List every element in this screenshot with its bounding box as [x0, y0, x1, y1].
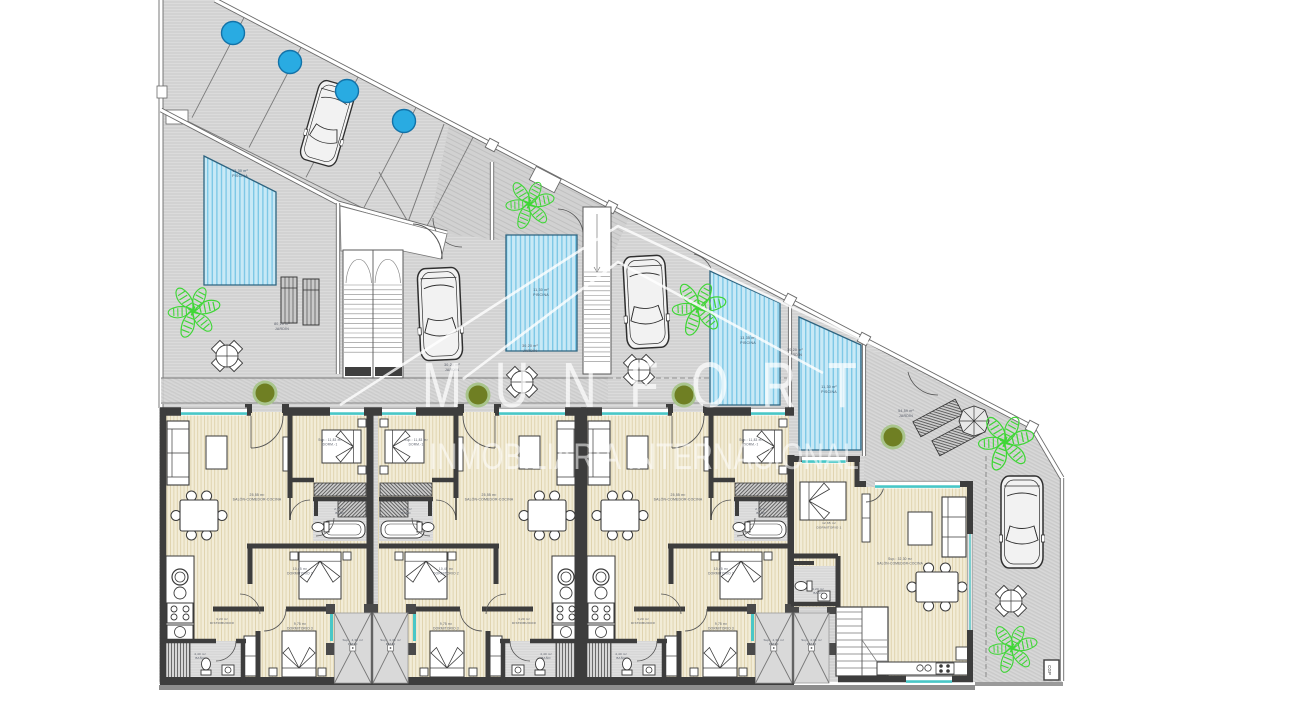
svg-text:DORMITORIO 3: DORMITORIO 3 [287, 626, 313, 630]
svg-text:DORM.-1: DORM.-1 [323, 442, 338, 446]
svg-text:PATIO: PATIO [769, 642, 779, 646]
svg-text:PISCINA: PISCINA [740, 341, 756, 345]
svg-text:54,59 m²: 54,59 m² [898, 409, 914, 413]
svg-text:PATIO: PATIO [807, 642, 817, 646]
svg-text:SALÓN-COMEDOR-COCINA: SALÓN-COMEDOR-COCINA [877, 560, 924, 565]
svg-text:11,30 m²: 11,30 m² [533, 288, 549, 292]
svg-text:9,75 m²: 9,75 m² [294, 622, 306, 626]
svg-text:10,45 m²: 10,45 m² [439, 567, 453, 571]
svg-text:SALÓN-COMEDOR-COCINA: SALÓN-COMEDOR-COCINA [233, 497, 282, 502]
svg-text:BAÑO: BAÑO [813, 590, 823, 595]
svg-text:DORMITORIO 2: DORMITORIO 2 [433, 571, 459, 575]
svg-text:BAÑO: BAÑO [401, 510, 411, 515]
svg-text:10,45 m²: 10,45 m² [714, 567, 728, 571]
svg-text:JARDÍN: JARDÍN [275, 327, 289, 331]
svg-text:PISCINA: PISCINA [533, 293, 549, 297]
svg-text:30,20 m²: 30,20 m² [522, 344, 538, 348]
svg-text:DORMITORIO 2: DORMITORIO 2 [287, 571, 313, 575]
svg-text:BAÑO: BAÑO [335, 510, 345, 515]
svg-text:DISTRIBUIDOR: DISTRIBUIDOR [512, 621, 537, 625]
svg-text:BAÑO: BAÑO [195, 655, 205, 660]
svg-text:DORMITORIO 3: DORMITORIO 3 [708, 626, 734, 630]
svg-text:JARDÍN: JARDÍN [899, 414, 913, 418]
svg-text:BAÑO: BAÑO [541, 655, 551, 660]
svg-text:PATIO: PATIO [348, 642, 358, 646]
svg-text:DISTRIBUIDOR: DISTRIBUIDOR [210, 621, 235, 625]
svg-text:Sup.: 11,83 m²: Sup.: 11,83 m² [404, 438, 427, 442]
svg-text:PATIO: PATIO [386, 642, 396, 646]
svg-text:Sup.: 11,83 m²: Sup.: 11,83 m² [318, 438, 341, 442]
svg-text:CGP: CGP [1047, 665, 1052, 675]
svg-text:PISCINA: PISCINA [232, 174, 248, 178]
svg-text:9,75 m²: 9,75 m² [440, 622, 452, 626]
svg-text:13,30 m²: 13,30 m² [232, 169, 248, 173]
svg-text:Sup.: 32,30 m²: Sup.: 32,30 m² [888, 557, 912, 561]
svg-text:SALÓN-COMEDOR-COCINA: SALÓN-COMEDOR-COCINA [465, 497, 514, 502]
svg-text:DORM.-1: DORM.-1 [409, 442, 424, 446]
svg-text:INMOBILIARIA INTERNACIONAL: INMOBILIARIA INTERNACIONAL [429, 436, 859, 477]
svg-text:DORMITORIO 3: DORMITORIO 3 [433, 626, 459, 630]
svg-text:25,55 m²: 25,55 m² [250, 493, 266, 497]
svg-text:25,55 m²: 25,55 m² [482, 493, 498, 497]
svg-text:DORMITORIO 2: DORMITORIO 2 [708, 571, 734, 575]
svg-text:10,45 m²: 10,45 m² [293, 567, 307, 571]
svg-text:SALÓN-COMEDOR-COCINA: SALÓN-COMEDOR-COCINA [654, 497, 703, 502]
svg-text:9,75 m²: 9,75 m² [715, 622, 727, 626]
svg-text:DISTRIBUIDOR: DISTRIBUIDOR [631, 621, 656, 625]
svg-text:BAÑO: BAÑO [756, 510, 766, 515]
svg-text:DORMITORIO 1: DORMITORIO 1 [816, 525, 841, 529]
svg-text:BAÑO: BAÑO [616, 655, 626, 660]
svg-text:25,55 m²: 25,55 m² [671, 493, 687, 497]
svg-text:80,20 m²: 80,20 m² [274, 322, 290, 326]
